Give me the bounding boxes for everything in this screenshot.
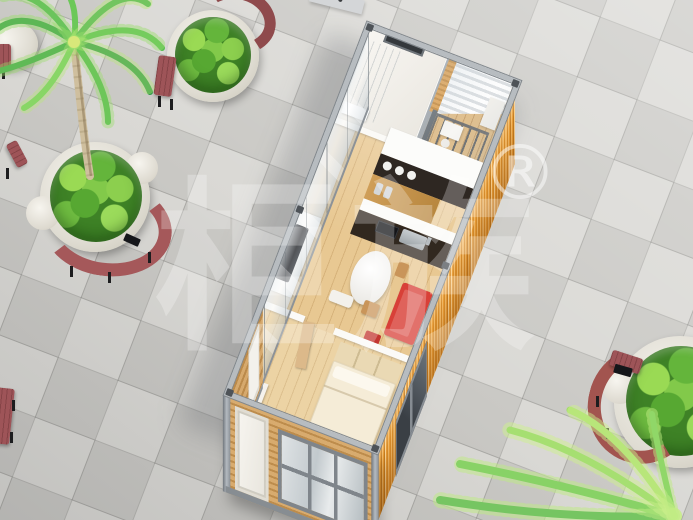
corner-post-southeast: [371, 452, 378, 520]
front-door: [235, 406, 269, 502]
palm-tree: [0, 0, 210, 240]
bench-leg: [10, 432, 13, 443]
bench-leg: [596, 396, 599, 407]
bench-leg: [148, 252, 151, 263]
render-stage: 柜族 ®: [0, 0, 693, 520]
bench-leg: [12, 400, 15, 411]
corner-casting-dot: [338, 0, 343, 2]
corner-post-southwest: [223, 395, 230, 494]
palm-fronds-corner: [412, 408, 693, 520]
palm-fronds: [440, 410, 674, 517]
bench-leg: [70, 266, 73, 277]
bench-leg: [108, 272, 111, 283]
